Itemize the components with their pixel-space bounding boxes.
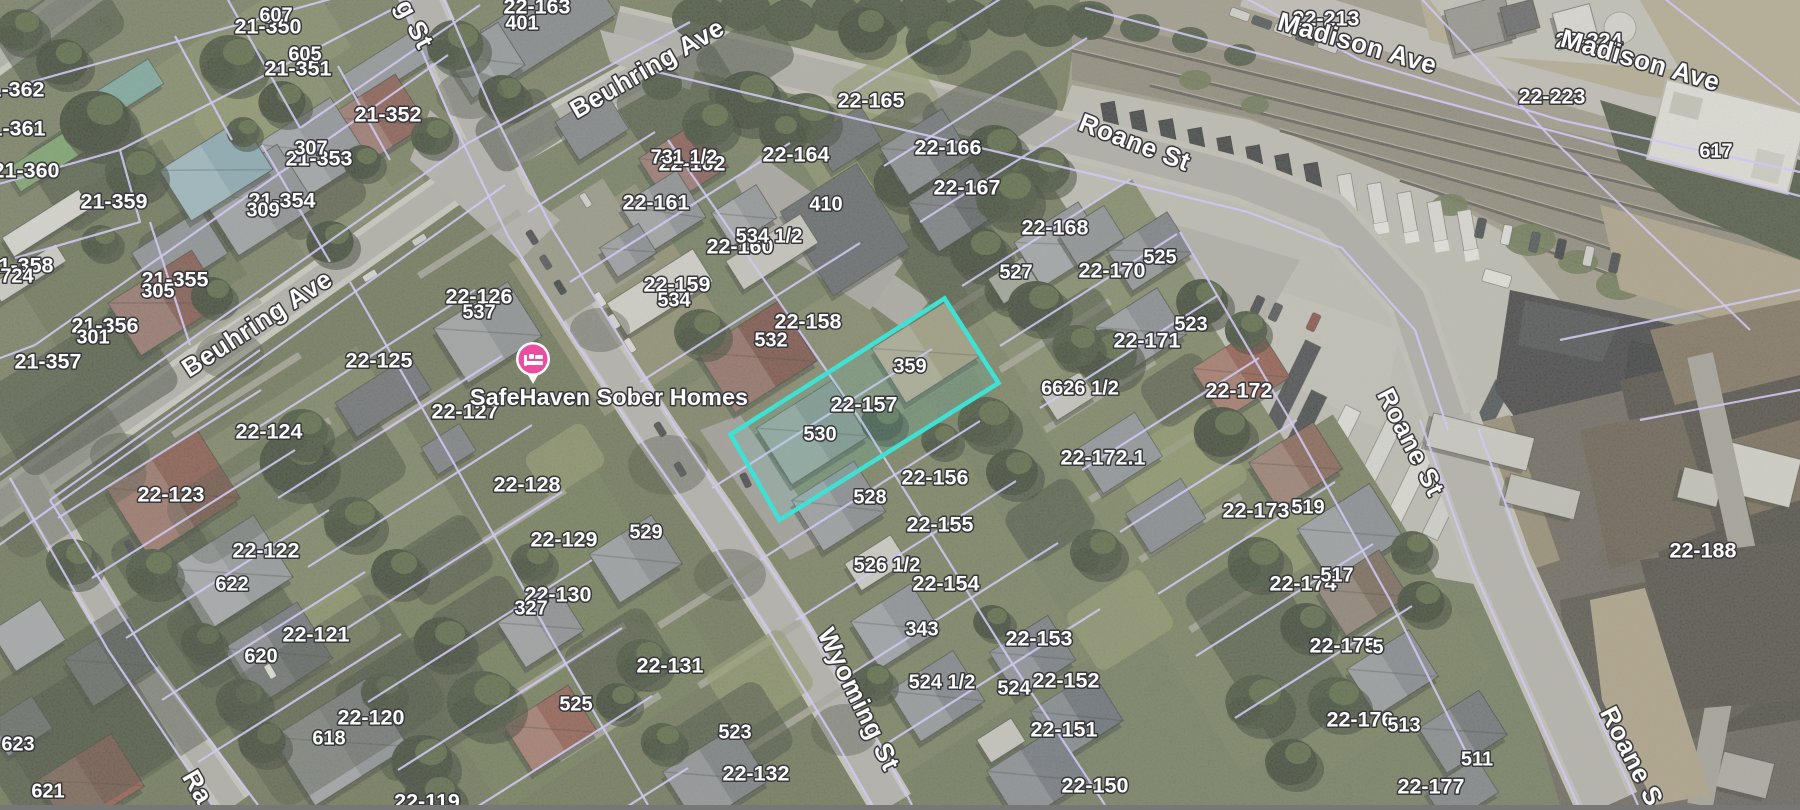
svg-text:410: 410 [809, 193, 842, 215]
svg-text:22-125: 22-125 [346, 349, 413, 373]
svg-text:524 1/2: 524 1/2 [909, 671, 976, 693]
svg-text:SafeHaven Sober Homes: SafeHaven Sober Homes [470, 384, 748, 410]
svg-text:617: 617 [1699, 140, 1732, 162]
svg-text:301: 301 [76, 326, 109, 348]
svg-text:305: 305 [141, 280, 174, 302]
svg-text:22-168: 22-168 [1022, 216, 1089, 240]
svg-text:22-177: 22-177 [1398, 775, 1465, 799]
svg-text:534 1/2: 534 1/2 [736, 225, 803, 247]
svg-text:523: 523 [1174, 313, 1207, 335]
svg-text:307: 307 [294, 137, 327, 159]
svg-text:525: 525 [559, 693, 592, 715]
svg-text:22-171: 22-171 [1114, 329, 1181, 353]
svg-text:6626 1/2: 6626 1/2 [1041, 377, 1119, 399]
svg-text:724: 724 [0, 265, 34, 287]
svg-text:22-164: 22-164 [763, 143, 830, 167]
svg-text:526 1/2: 526 1/2 [854, 554, 921, 576]
svg-text:22-173: 22-173 [1223, 499, 1290, 523]
svg-text:22-151: 22-151 [1031, 718, 1098, 742]
svg-text:523: 523 [718, 721, 751, 743]
svg-text:22-155: 22-155 [907, 513, 974, 537]
svg-text:22-132: 22-132 [723, 762, 790, 786]
svg-text:607: 607 [259, 4, 292, 26]
svg-text:527: 527 [999, 261, 1032, 283]
svg-text:22-161: 22-161 [623, 191, 690, 215]
svg-text:530: 530 [803, 423, 836, 445]
svg-text:22-166: 22-166 [915, 136, 982, 160]
svg-text:22-165: 22-165 [838, 89, 905, 113]
svg-text:519: 519 [1291, 496, 1324, 518]
svg-text:22-124: 22-124 [236, 420, 303, 444]
svg-text:22-170: 22-170 [1079, 259, 1146, 283]
svg-text:21-357: 21-357 [15, 350, 82, 374]
svg-text:5: 5 [1372, 636, 1383, 658]
svg-text:22-120: 22-120 [338, 706, 405, 730]
svg-text:401: 401 [505, 12, 538, 34]
svg-text:21-360: 21-360 [0, 159, 60, 183]
svg-text:534: 534 [657, 289, 691, 311]
svg-text:22-128: 22-128 [494, 473, 561, 497]
svg-text:22-122: 22-122 [233, 539, 300, 563]
svg-text:513: 513 [1387, 714, 1420, 736]
svg-text:529: 529 [629, 521, 662, 543]
svg-text:343: 343 [905, 618, 938, 640]
svg-text:22-176: 22-176 [1327, 708, 1394, 732]
svg-text:622: 622 [215, 573, 248, 595]
svg-text:327: 327 [514, 597, 547, 619]
svg-text:22-152: 22-152 [1033, 669, 1100, 693]
svg-text:620: 620 [244, 645, 277, 667]
svg-text:621: 621 [31, 780, 64, 802]
svg-text:605: 605 [288, 43, 321, 65]
svg-text:21-352: 21-352 [355, 103, 422, 127]
svg-text:528: 528 [853, 486, 886, 508]
svg-text:22-157: 22-157 [831, 393, 898, 417]
svg-text:359: 359 [893, 355, 926, 377]
svg-text:22-153: 22-153 [1006, 627, 1073, 651]
svg-text:22-172: 22-172 [1206, 379, 1273, 403]
svg-text:22-154: 22-154 [913, 572, 980, 596]
svg-text:21-361: 21-361 [0, 117, 46, 141]
svg-text:22-156: 22-156 [902, 466, 969, 490]
svg-text:524: 524 [997, 677, 1031, 699]
svg-text:731 1/2: 731 1/2 [651, 146, 718, 168]
svg-text:22-172.1: 22-172.1 [1061, 446, 1146, 470]
svg-text:618: 618 [312, 727, 345, 749]
svg-text:537: 537 [462, 301, 495, 323]
svg-text:22-131: 22-131 [637, 654, 704, 678]
svg-text:21-359: 21-359 [81, 190, 148, 214]
svg-text:525: 525 [1143, 246, 1176, 268]
svg-text:22-150: 22-150 [1062, 774, 1129, 798]
svg-text:22-175: 22-175 [1310, 634, 1377, 658]
svg-text:22-167: 22-167 [934, 176, 1001, 200]
svg-text:309: 309 [246, 199, 279, 221]
svg-text:22-223: 22-223 [1519, 85, 1586, 109]
svg-text:517: 517 [1320, 564, 1353, 586]
svg-text:532: 532 [754, 329, 787, 351]
svg-text:22-129: 22-129 [531, 528, 598, 552]
svg-text:22-123: 22-123 [138, 483, 205, 507]
svg-text:22-121: 22-121 [283, 623, 350, 647]
svg-text:511: 511 [1461, 748, 1493, 770]
svg-text:623: 623 [1, 733, 34, 755]
svg-text:22-188: 22-188 [1670, 539, 1737, 563]
svg-text:21-362: 21-362 [0, 78, 45, 102]
svg-text:22-119: 22-119 [394, 790, 460, 805]
